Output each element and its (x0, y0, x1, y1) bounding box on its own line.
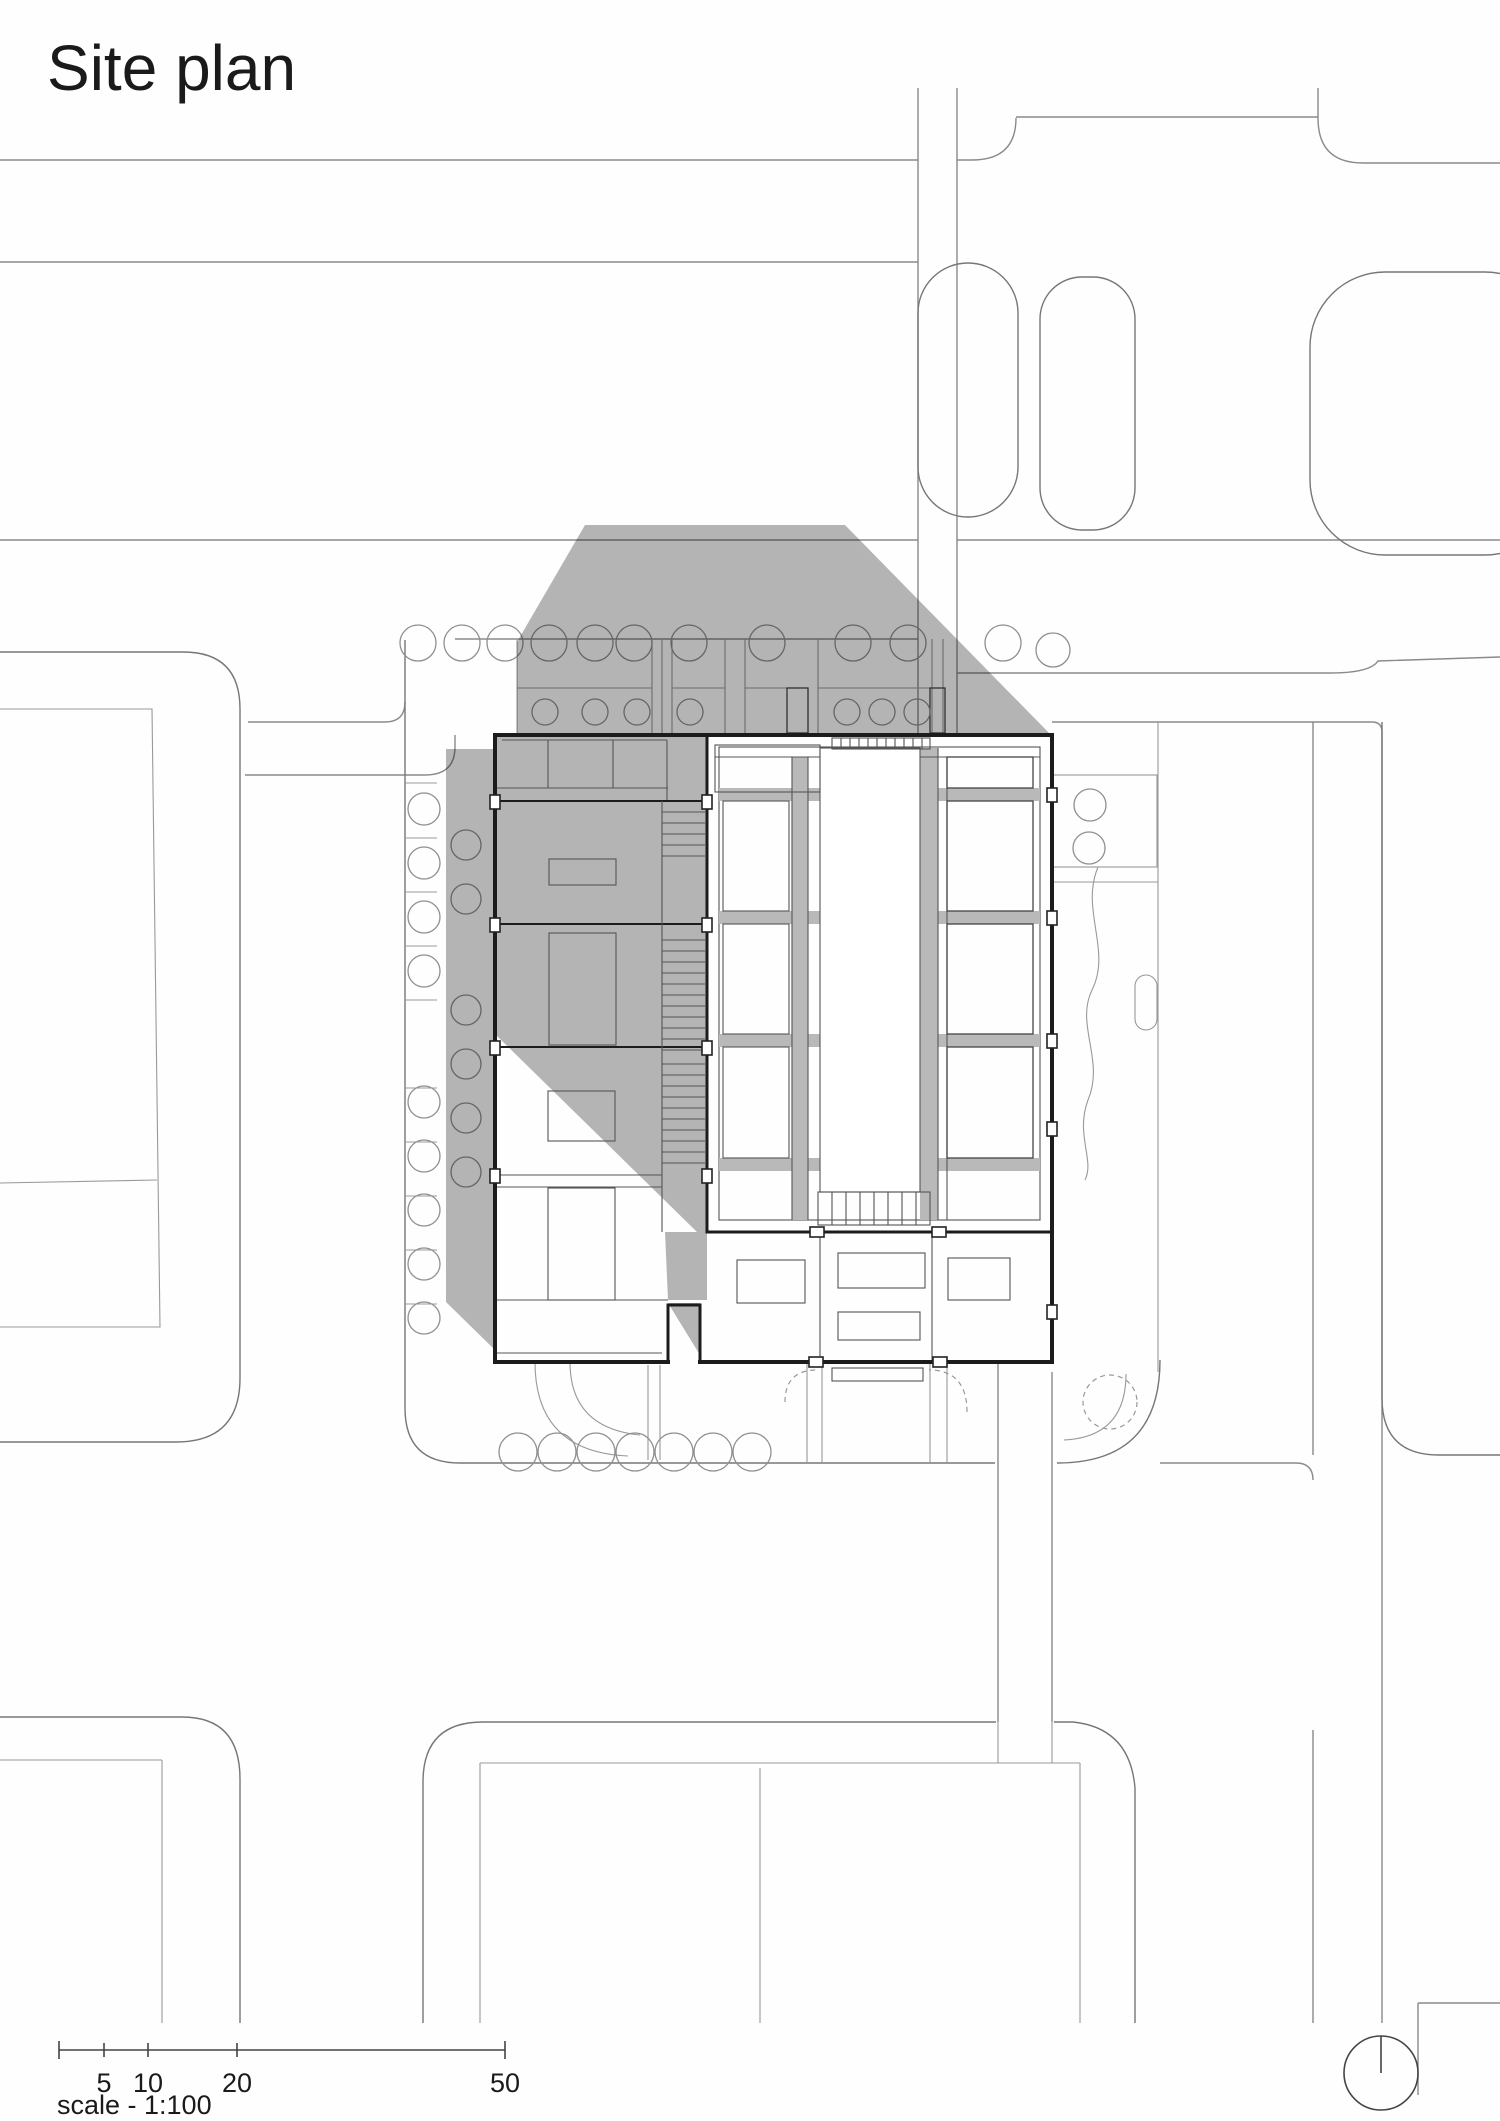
hall-interior (715, 738, 1040, 1225)
north-arrow-icon (1344, 2036, 1418, 2110)
tree-row-south (499, 1433, 771, 1471)
scale-bar: 5 10 20 50 scale - 1:100 (57, 2041, 520, 2120)
scale-label-20: 20 (222, 2068, 252, 2098)
entrance-canopy (832, 1368, 923, 1381)
site-plan-drawing: Site plan 5 10 20 50 scale - 1:100 (0, 0, 1500, 2121)
south-wing-interior (737, 1232, 1010, 1381)
page-title: Site plan (47, 32, 296, 104)
courtyard (820, 748, 920, 1192)
site-plan-sheet: Site plan 5 10 20 50 scale - 1:100 (0, 0, 1500, 2121)
roads-and-blocks (0, 88, 1500, 2095)
scale-label-50: 50 (490, 2068, 520, 2098)
scale-caption: scale - 1:100 (57, 2090, 212, 2120)
